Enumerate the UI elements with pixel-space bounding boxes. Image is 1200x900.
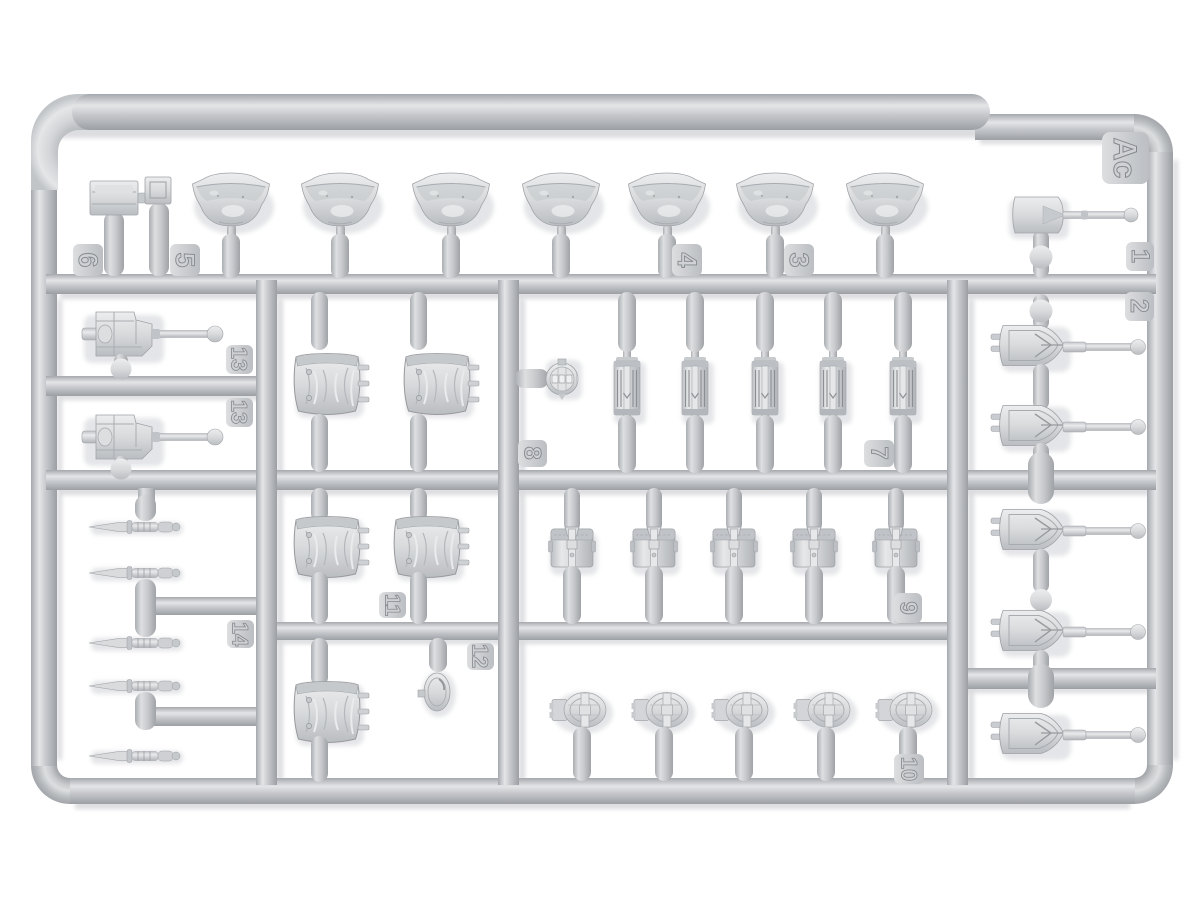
svg-text:9: 9	[895, 601, 922, 614]
svg-text:12: 12	[468, 644, 493, 668]
svg-text:5: 5	[170, 252, 200, 267]
svg-text:2: 2	[1125, 299, 1153, 313]
svg-text:13: 13	[227, 347, 252, 371]
svg-text:11: 11	[381, 594, 404, 617]
svg-text:7: 7	[866, 446, 893, 459]
svg-text:13: 13	[227, 400, 252, 424]
svg-text:10: 10	[897, 757, 922, 781]
svg-text:4: 4	[672, 252, 702, 267]
svg-text:3: 3	[784, 252, 814, 267]
svg-text:8: 8	[519, 446, 546, 459]
svg-text:1: 1	[1126, 249, 1154, 263]
svg-text:14: 14	[228, 622, 253, 647]
svg-text:6: 6	[73, 252, 103, 267]
svg-text:Ac: Ac	[1107, 138, 1143, 179]
